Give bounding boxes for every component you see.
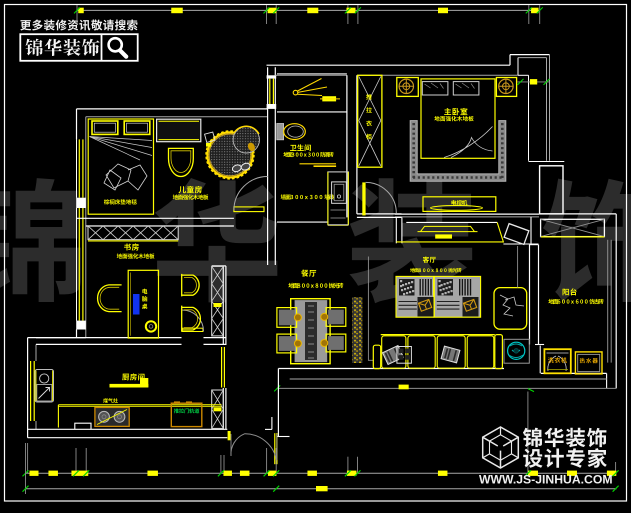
svg-text:WWW.JS-JINHUA.COM: WWW.JS-JINHUA.COM — [479, 473, 613, 487]
